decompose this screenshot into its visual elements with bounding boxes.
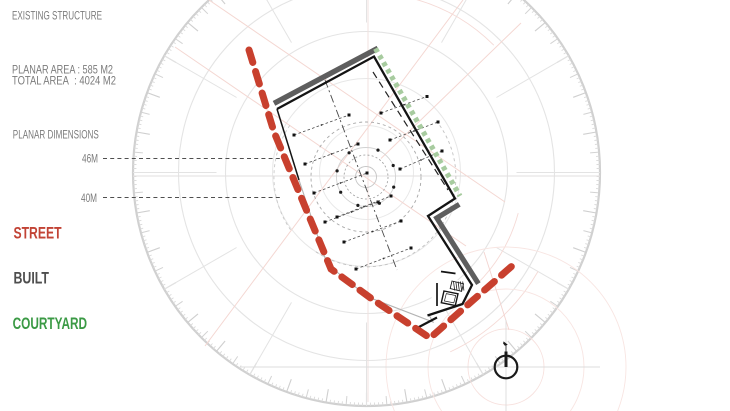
svg-text:EXISTING STRUCTURE: EXISTING STRUCTURE bbox=[12, 9, 102, 23]
svg-text:TOTAL AREA : 4024 M2: TOTAL AREA : 4024 M2 bbox=[12, 74, 116, 88]
svg-text:STREET: STREET bbox=[14, 224, 62, 243]
svg-text:46M: 46M bbox=[82, 152, 98, 166]
svg-text:COURTYARD: COURTYARD bbox=[13, 314, 88, 333]
svg-text:BUILT: BUILT bbox=[14, 269, 50, 288]
svg-text:40M: 40M bbox=[81, 191, 97, 205]
svg-text:PLANAR DIMENSIONS: PLANAR DIMENSIONS bbox=[13, 128, 99, 142]
